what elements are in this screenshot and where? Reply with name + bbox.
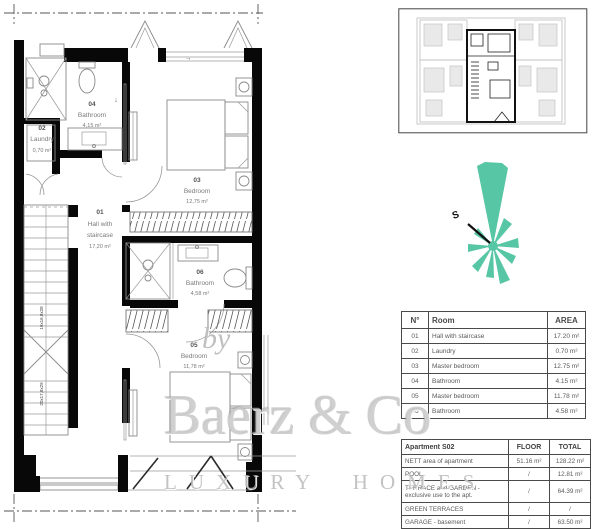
- svg-text:Bathroom: Bathroom: [186, 280, 214, 287]
- label-bathroom04: 04 Bathroom 4,15 m²: [78, 101, 106, 129]
- col-header-total: TOTAL: [550, 440, 591, 455]
- table-row: 02 Laundry 0.70 m²: [402, 344, 586, 359]
- svg-text:05: 05: [190, 342, 198, 349]
- shower-arrow: ↓: [114, 97, 118, 104]
- stair-annotation-2: 20x17,8x29: [39, 382, 44, 406]
- svg-text:04: 04: [88, 101, 96, 108]
- table-row: 06 Bathroom 4.58 m²: [402, 404, 586, 419]
- compass-south-label: S: [451, 209, 461, 222]
- table-row: 05 Master bedroom 11.78 m²: [402, 389, 586, 404]
- main-floor-plan: → ↓: [0, 0, 390, 529]
- col-header-no: N°: [402, 312, 429, 329]
- table-row: 04 Bathroom 4.15 m²: [402, 374, 586, 389]
- svg-text:Hall with: Hall with: [88, 221, 113, 228]
- summary-title: Apartment S02: [402, 440, 509, 455]
- summary-row: TERRACE and GARDEN - exclusive use to th…: [402, 481, 591, 503]
- svg-text:staircase: staircase: [87, 232, 113, 239]
- svg-text:0,70 m²: 0,70 m²: [33, 148, 52, 154]
- highlighted-unit: [467, 30, 515, 122]
- summary-row: GREEN TERRACES / /: [402, 503, 591, 516]
- overview-key-plan: [398, 8, 588, 134]
- bathroom06-fixtures: [126, 243, 252, 299]
- svg-text:Bedroom: Bedroom: [181, 353, 207, 360]
- apartment-summary-table: Apartment S02 FLOOR TOTAL NETT area of a…: [401, 439, 591, 529]
- wardrobes: [126, 212, 252, 332]
- svg-text:12,75 m²: 12,75 m²: [186, 199, 208, 205]
- svg-text:Laundry: Laundry: [30, 136, 54, 143]
- label-bedroom05: 05 Bedroom 11,78 m²: [181, 342, 207, 370]
- summary-row: POOL / 12.81 m²: [402, 468, 591, 481]
- svg-text:4,58 m²: 4,58 m²: [191, 291, 210, 297]
- room-area-table: N° Room AREA 01 Hall with staircase 17.2…: [401, 311, 586, 419]
- staircase: 19x16,8x28 20x17,8x29: [24, 205, 68, 435]
- floor-plan-page: → ↓: [0, 0, 600, 529]
- window-arrow: →: [185, 55, 192, 62]
- svg-text:03: 03: [193, 177, 201, 184]
- svg-text:01: 01: [96, 209, 104, 216]
- table-row: 03 Master bedroom 12.75 m²: [402, 359, 586, 374]
- svg-text:17,20 m²: 17,20 m²: [89, 244, 111, 250]
- stair-annotation-1: 19x16,8x28: [39, 306, 44, 330]
- svg-text:Bathroom: Bathroom: [78, 112, 106, 119]
- label-hall: 01 Hall with staircase 17,20 m²: [87, 209, 113, 250]
- bedroom03-furniture: [124, 78, 252, 190]
- table-row: 01 Hall with staircase 17.20 m²: [402, 329, 586, 344]
- label-laundry: 02 Laundry 0,70 m²: [30, 125, 54, 154]
- label-bathroom06: 06 Bathroom 4,58 m²: [186, 269, 214, 297]
- svg-text:06: 06: [196, 269, 204, 276]
- col-header-room: Room: [429, 312, 548, 329]
- table-header-row: N° Room AREA: [402, 312, 586, 329]
- compass-rose: S: [440, 150, 560, 300]
- summary-header-row: Apartment S02 FLOOR TOTAL: [402, 440, 591, 455]
- svg-text:4,15 m²: 4,15 m²: [83, 123, 102, 129]
- svg-text:11,78 m²: 11,78 m²: [183, 364, 204, 370]
- summary-row: NETT area of apartment 51.16 m² 128.22 m…: [402, 455, 591, 468]
- svg-text:02: 02: [38, 125, 46, 132]
- label-bedroom03: 03 Bedroom 12,75 m²: [184, 177, 210, 205]
- col-header-floor: FLOOR: [509, 440, 550, 455]
- svg-text:Bedroom: Bedroom: [184, 188, 210, 195]
- summary-row: GARAGE - basement / 63.50 m²: [402, 516, 591, 529]
- col-header-area: AREA: [548, 312, 586, 329]
